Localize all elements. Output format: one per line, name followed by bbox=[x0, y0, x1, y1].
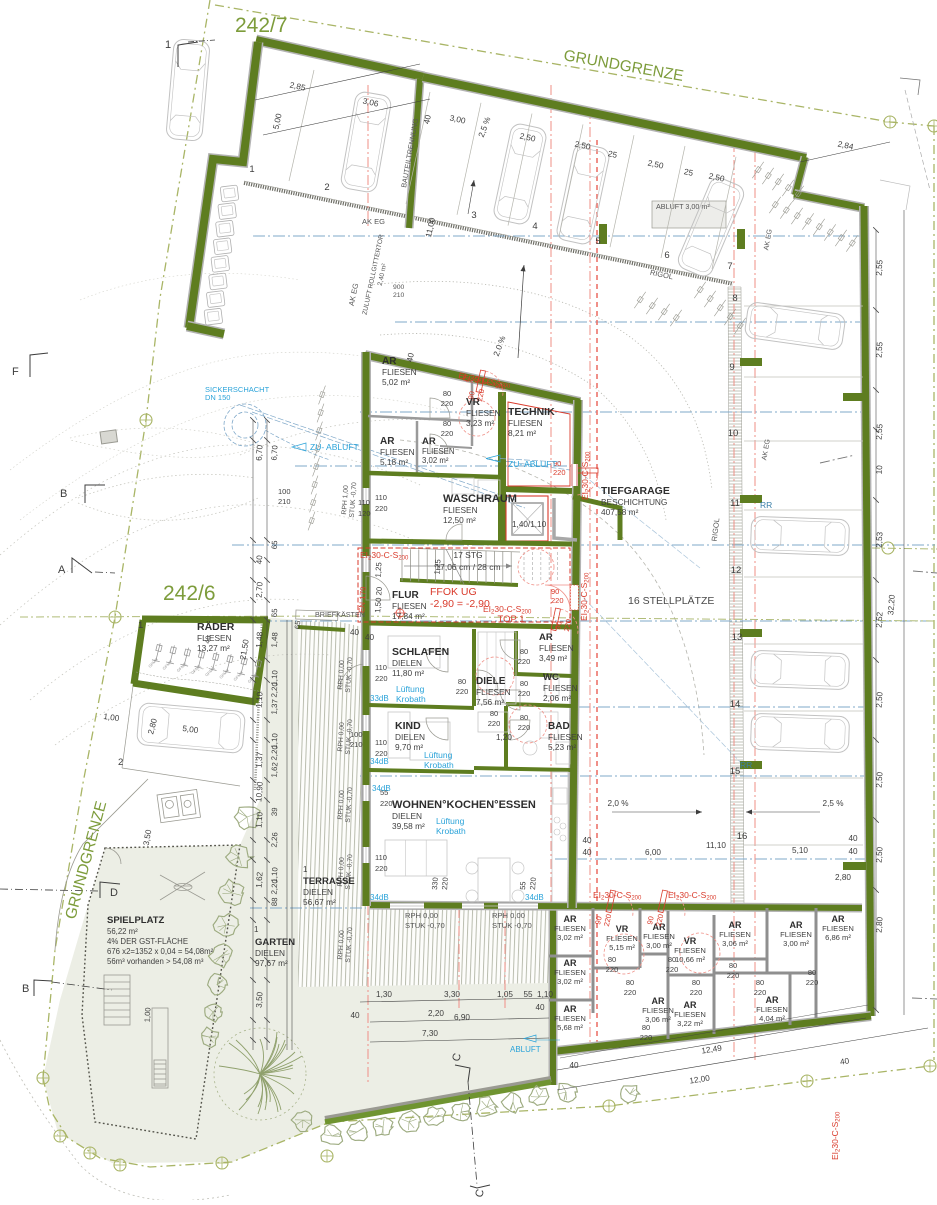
svg-text:2,20: 2,20 bbox=[428, 1009, 444, 1018]
svg-text:AR: AR bbox=[564, 958, 577, 968]
svg-text:3,02 m²: 3,02 m² bbox=[422, 456, 449, 465]
svg-text:6,70: 6,70 bbox=[269, 444, 279, 460]
svg-text:2,55: 2,55 bbox=[874, 341, 884, 358]
svg-text:242/6: 242/6 bbox=[163, 582, 216, 605]
svg-text:80: 80 bbox=[668, 955, 676, 964]
svg-text:FLIESEN: FLIESEN bbox=[822, 924, 854, 933]
svg-text:3,30: 3,30 bbox=[444, 990, 460, 999]
svg-text:5,68 m²: 5,68 m² bbox=[557, 1023, 583, 1032]
svg-text:900: 900 bbox=[393, 284, 405, 291]
svg-text:2: 2 bbox=[324, 182, 329, 193]
svg-text:TIEFGARAGE: TIEFGARAGE bbox=[601, 485, 670, 497]
svg-text:7: 7 bbox=[727, 261, 732, 272]
svg-text:2,50: 2,50 bbox=[874, 691, 884, 708]
svg-text:Krobath: Krobath bbox=[436, 826, 466, 836]
svg-text:FLIESEN: FLIESEN bbox=[476, 687, 511, 697]
svg-text:1,40/1,10: 1,40/1,10 bbox=[512, 520, 547, 529]
svg-text:110: 110 bbox=[375, 493, 387, 502]
svg-text:FLIESEN: FLIESEN bbox=[466, 408, 501, 418]
svg-text:110: 110 bbox=[375, 663, 387, 672]
svg-text:D: D bbox=[110, 887, 118, 899]
svg-text:3: 3 bbox=[471, 210, 476, 221]
svg-text:DIELEN: DIELEN bbox=[392, 658, 422, 668]
svg-text:220: 220 bbox=[518, 723, 531, 732]
svg-text:3,22 m²: 3,22 m² bbox=[677, 1019, 703, 1028]
svg-text:TOP 1: TOP 1 bbox=[497, 614, 524, 625]
svg-text:1,48: 1,48 bbox=[254, 631, 264, 648]
svg-text:220: 220 bbox=[456, 687, 469, 696]
svg-text:F: F bbox=[12, 366, 19, 378]
svg-text:3,02 m²: 3,02 m² bbox=[557, 933, 583, 942]
svg-text:40: 40 bbox=[204, 635, 212, 644]
svg-text:2,50: 2,50 bbox=[874, 771, 884, 788]
svg-text:RR: RR bbox=[760, 500, 772, 510]
svg-text:220: 220 bbox=[666, 965, 679, 974]
svg-text:220: 220 bbox=[806, 978, 819, 987]
svg-text:2,70: 2,70 bbox=[254, 581, 264, 598]
svg-text:11: 11 bbox=[730, 498, 740, 509]
svg-text:407,58 m²: 407,58 m² bbox=[601, 507, 639, 517]
svg-text:40: 40 bbox=[350, 1011, 360, 1020]
svg-text:220: 220 bbox=[488, 719, 501, 728]
svg-text:Krobath: Krobath bbox=[396, 694, 426, 704]
svg-text:12: 12 bbox=[731, 565, 742, 576]
svg-text:5,02 m²: 5,02 m² bbox=[382, 377, 410, 387]
svg-text:1,37: 1,37 bbox=[254, 751, 264, 768]
svg-text:88: 88 bbox=[270, 897, 280, 906]
svg-text:40: 40 bbox=[582, 848, 592, 857]
svg-text:AR: AR bbox=[564, 914, 577, 924]
svg-text:TECHNIK: TECHNIK bbox=[508, 406, 555, 418]
svg-text:FLIESEN: FLIESEN bbox=[508, 418, 543, 428]
svg-text:2,26: 2,26 bbox=[269, 832, 279, 848]
svg-text:16: 16 bbox=[737, 831, 748, 842]
svg-text:3,49 m²: 3,49 m² bbox=[539, 653, 567, 663]
svg-text:1,25: 1,25 bbox=[373, 561, 383, 577]
svg-text:80: 80 bbox=[458, 677, 466, 686]
svg-text:80: 80 bbox=[808, 968, 816, 977]
svg-text:210: 210 bbox=[350, 740, 363, 749]
svg-text:220: 220 bbox=[624, 988, 637, 997]
svg-text:1,05: 1,05 bbox=[497, 990, 513, 999]
svg-text:RPH 0,00: RPH 0,00 bbox=[405, 911, 438, 920]
svg-text:1,20: 1,20 bbox=[496, 733, 512, 742]
svg-text:FLIESEN: FLIESEN bbox=[554, 1014, 586, 1023]
svg-text:DIELEN: DIELEN bbox=[303, 887, 333, 897]
svg-text:FLIESEN: FLIESEN bbox=[539, 643, 574, 653]
svg-text:AR: AR bbox=[652, 996, 665, 1006]
svg-text:DIELEN: DIELEN bbox=[255, 948, 285, 958]
svg-text:100: 100 bbox=[278, 487, 291, 496]
svg-text:2,20: 2,20 bbox=[269, 878, 279, 894]
svg-text:220: 220 bbox=[690, 988, 703, 997]
svg-text:220: 220 bbox=[375, 864, 388, 873]
svg-text:FLIESEN: FLIESEN bbox=[422, 447, 455, 456]
svg-text:1,62: 1,62 bbox=[269, 762, 279, 778]
svg-text:FLUR: FLUR bbox=[392, 590, 419, 601]
svg-text:80: 80 bbox=[443, 419, 451, 428]
svg-text:2: 2 bbox=[118, 757, 123, 768]
svg-text:Lüftung: Lüftung bbox=[436, 816, 465, 826]
svg-text:330: 330 bbox=[430, 877, 440, 890]
svg-text:FLIESEN: FLIESEN bbox=[606, 934, 638, 943]
svg-text:6,90: 6,90 bbox=[454, 1013, 470, 1022]
svg-text:-2,90 = -2,90: -2,90 = -2,90 bbox=[430, 598, 490, 610]
svg-text:FLIESEN: FLIESEN bbox=[719, 930, 751, 939]
svg-text:40: 40 bbox=[839, 1056, 850, 1066]
svg-text:80: 80 bbox=[626, 978, 634, 987]
svg-text:5: 5 bbox=[595, 236, 600, 247]
svg-text:65: 65 bbox=[270, 608, 280, 618]
svg-text:WC: WC bbox=[543, 672, 559, 683]
svg-text:VR: VR bbox=[616, 924, 629, 934]
svg-text:Lüftung: Lüftung bbox=[424, 750, 453, 760]
svg-text:5,18 m²: 5,18 m² bbox=[380, 457, 408, 467]
svg-text:110: 110 bbox=[375, 853, 387, 862]
svg-text:210: 210 bbox=[278, 497, 291, 506]
svg-text:13,27 m²: 13,27 m² bbox=[197, 643, 230, 653]
svg-text:1: 1 bbox=[165, 39, 171, 51]
svg-text:1,37: 1,37 bbox=[269, 699, 279, 715]
svg-text:14: 14 bbox=[730, 699, 741, 710]
svg-text:6,86 m²: 6,86 m² bbox=[825, 933, 851, 942]
svg-text:DIELE: DIELE bbox=[476, 676, 506, 687]
svg-text:40: 40 bbox=[255, 555, 265, 565]
svg-text:5,15 m²: 5,15 m² bbox=[609, 943, 635, 952]
svg-text:40: 40 bbox=[535, 1003, 545, 1012]
svg-text:80: 80 bbox=[642, 1023, 650, 1032]
svg-text:80: 80 bbox=[729, 961, 737, 970]
svg-text:STUK -0,70: STUK -0,70 bbox=[492, 921, 532, 930]
svg-text:56,67 m²: 56,67 m² bbox=[303, 897, 336, 907]
svg-text:3,23 m²: 3,23 m² bbox=[466, 418, 494, 428]
svg-text:3,50: 3,50 bbox=[254, 991, 264, 1008]
svg-text:220: 220 bbox=[553, 468, 566, 477]
svg-text:39: 39 bbox=[270, 807, 280, 816]
svg-text:2,5 %: 2,5 % bbox=[823, 799, 844, 808]
svg-text:Krobath: Krobath bbox=[424, 760, 454, 770]
svg-text:220: 220 bbox=[551, 596, 564, 605]
svg-text:10,90: 10,90 bbox=[254, 781, 264, 803]
svg-text:15: 15 bbox=[730, 766, 741, 777]
svg-text:FLIESEN: FLIESEN bbox=[674, 1010, 706, 1019]
svg-text:DN 150: DN 150 bbox=[205, 393, 230, 402]
svg-text:2,20: 2,20 bbox=[269, 681, 279, 697]
svg-text:11,10: 11,10 bbox=[706, 841, 726, 850]
svg-text:40: 40 bbox=[582, 836, 592, 845]
svg-text:220: 220 bbox=[518, 657, 531, 666]
svg-text:FLIESEN: FLIESEN bbox=[643, 932, 675, 941]
svg-text:WASCHRAUM: WASCHRAUM bbox=[443, 493, 517, 505]
svg-text:34dB: 34dB bbox=[370, 757, 389, 766]
svg-text:220: 220 bbox=[727, 971, 740, 980]
svg-text:80: 80 bbox=[608, 955, 616, 964]
svg-text:ABLUFT: ABLUFT bbox=[510, 1045, 541, 1054]
svg-text:SPIELPLATZ: SPIELPLATZ bbox=[107, 915, 165, 926]
svg-text:FLIESEN: FLIESEN bbox=[548, 732, 583, 742]
svg-text:120: 120 bbox=[358, 509, 371, 518]
svg-text:9: 9 bbox=[729, 362, 734, 373]
svg-text:97,67 m²: 97,67 m² bbox=[255, 958, 288, 968]
svg-text:2,80: 2,80 bbox=[874, 916, 884, 933]
svg-text:4: 4 bbox=[532, 221, 537, 232]
svg-text:80: 80 bbox=[520, 679, 528, 688]
svg-text:TERRASSE: TERRASSE bbox=[303, 876, 355, 887]
svg-text:40: 40 bbox=[350, 628, 360, 637]
svg-text:DIELEN: DIELEN bbox=[392, 811, 422, 821]
svg-text:WOHNEN°KOCHEN°ESSEN: WOHNEN°KOCHEN°ESSEN bbox=[392, 799, 536, 811]
svg-text:GARTEN: GARTEN bbox=[255, 937, 295, 948]
svg-text:1: 1 bbox=[249, 164, 254, 175]
svg-text:2,55: 2,55 bbox=[874, 423, 884, 440]
svg-text:5,23 m²: 5,23 m² bbox=[548, 742, 576, 752]
svg-text:2,53: 2,53 bbox=[874, 531, 884, 548]
svg-text:3,00 m²: 3,00 m² bbox=[646, 941, 672, 950]
svg-text:17,84 m²: 17,84 m² bbox=[392, 611, 425, 621]
svg-text:AR: AR bbox=[382, 356, 397, 367]
svg-text:AR: AR bbox=[766, 995, 779, 1005]
svg-text:BRIEFKÄSTEN: BRIEFKÄSTEN bbox=[315, 610, 365, 619]
svg-text:B: B bbox=[22, 983, 29, 995]
svg-text:1,00: 1,00 bbox=[143, 1007, 153, 1022]
svg-text:AK EG: AK EG bbox=[362, 217, 385, 226]
svg-text:AR: AR bbox=[422, 436, 436, 447]
svg-text:2,06 m²: 2,06 m² bbox=[543, 693, 571, 703]
svg-text:80: 80 bbox=[692, 978, 700, 987]
svg-text:8: 8 bbox=[732, 293, 737, 304]
svg-text:B: B bbox=[60, 488, 67, 500]
svg-text:100: 100 bbox=[350, 730, 363, 739]
svg-text:RR: RR bbox=[740, 760, 752, 770]
svg-text:BAD: BAD bbox=[548, 721, 570, 732]
svg-text:10: 10 bbox=[875, 465, 885, 475]
svg-text:1,10: 1,10 bbox=[537, 990, 553, 999]
svg-text:9,70 m²: 9,70 m² bbox=[395, 742, 423, 752]
svg-text:3,06 m²: 3,06 m² bbox=[722, 939, 748, 948]
svg-text:13: 13 bbox=[732, 632, 743, 643]
svg-text:39,58 m²: 39,58 m² bbox=[392, 821, 425, 831]
svg-text:80: 80 bbox=[490, 709, 498, 718]
svg-text:676 x2=1352 x 0,04 = 54,08m²: 676 x2=1352 x 0,04 = 54,08m² bbox=[107, 947, 214, 956]
svg-text:17,06 cm / 28 cm: 17,06 cm / 28 cm bbox=[435, 562, 500, 572]
svg-text:5,10: 5,10 bbox=[792, 846, 808, 855]
svg-text:4,04 m²: 4,04 m² bbox=[759, 1014, 785, 1023]
svg-text:AR: AR bbox=[790, 920, 803, 930]
svg-text:1: 1 bbox=[138, 620, 143, 631]
svg-text:FLIESEN: FLIESEN bbox=[674, 946, 706, 955]
svg-text:DIELEN: DIELEN bbox=[395, 732, 425, 742]
svg-text:242/7: 242/7 bbox=[235, 14, 288, 37]
svg-text:220: 220 bbox=[441, 399, 454, 408]
svg-text:40: 40 bbox=[848, 847, 858, 856]
svg-text:1: 1 bbox=[254, 925, 259, 934]
svg-text:BESCHICHTUNG: BESCHICHTUNG bbox=[601, 497, 667, 507]
svg-text:220: 220 bbox=[528, 877, 538, 890]
svg-text:2,55: 2,55 bbox=[874, 259, 884, 276]
svg-text:FLIESEN: FLIESEN bbox=[554, 924, 586, 933]
svg-text:FLIESEN: FLIESEN bbox=[543, 683, 578, 693]
svg-text:3,00 m²: 3,00 m² bbox=[783, 939, 809, 948]
svg-text:1,10: 1,10 bbox=[254, 691, 264, 708]
svg-text:1,25: 1,25 bbox=[432, 558, 442, 574]
svg-text:80: 80 bbox=[520, 647, 528, 656]
svg-text:1,62: 1,62 bbox=[254, 871, 264, 888]
svg-text:RPH 0,00: RPH 0,00 bbox=[492, 911, 525, 920]
svg-text:2,50: 2,50 bbox=[874, 846, 884, 863]
svg-text:11,80 m²: 11,80 m² bbox=[392, 668, 424, 678]
svg-text:65: 65 bbox=[270, 540, 280, 550]
svg-text:AR: AR bbox=[729, 920, 742, 930]
svg-text:FLIESEN: FLIESEN bbox=[780, 930, 812, 939]
svg-text:32,20: 32,20 bbox=[886, 594, 896, 616]
svg-text:2,20: 2,20 bbox=[269, 744, 279, 760]
svg-text:FLIESEN: FLIESEN bbox=[642, 1006, 674, 1015]
svg-text:220: 220 bbox=[375, 674, 388, 683]
svg-text:ZU- ABLUFT: ZU- ABLUFT bbox=[310, 442, 359, 452]
svg-text:8,21 m²: 8,21 m² bbox=[508, 428, 536, 438]
svg-text:6,70: 6,70 bbox=[254, 444, 264, 461]
svg-text:33dB: 33dB bbox=[370, 694, 389, 703]
svg-text:12,50 m²: 12,50 m² bbox=[443, 515, 476, 525]
svg-text:40: 40 bbox=[365, 633, 375, 642]
svg-text:1,30: 1,30 bbox=[376, 990, 392, 999]
svg-text:RÄDER: RÄDER bbox=[197, 620, 235, 633]
svg-text:6,00: 6,00 bbox=[645, 848, 661, 857]
svg-text:STUK -0,70: STUK -0,70 bbox=[405, 921, 445, 930]
svg-text:16 STELLPLÄTZE: 16 STELLPLÄTZE bbox=[628, 595, 714, 607]
svg-text:SCHLAFEN: SCHLAFEN bbox=[392, 646, 449, 658]
svg-text:Lüftung: Lüftung bbox=[396, 684, 425, 694]
svg-text:FLIESEN: FLIESEN bbox=[392, 601, 427, 611]
svg-text:220: 220 bbox=[375, 504, 388, 513]
svg-text:110: 110 bbox=[375, 738, 387, 747]
svg-text:3,02 m²: 3,02 m² bbox=[557, 977, 583, 986]
svg-text:FLIESEN: FLIESEN bbox=[382, 367, 417, 377]
svg-text:90: 90 bbox=[551, 587, 559, 596]
svg-text:10: 10 bbox=[728, 428, 739, 439]
svg-text:6: 6 bbox=[664, 250, 669, 261]
svg-text:4% DER GST-FLÄCHE: 4% DER GST-FLÄCHE bbox=[107, 937, 188, 946]
svg-text:80: 80 bbox=[756, 978, 764, 987]
svg-text:220: 220 bbox=[518, 689, 531, 698]
svg-text:FLIESEN: FLIESEN bbox=[756, 1005, 788, 1014]
svg-text:AR: AR bbox=[564, 1004, 577, 1014]
svg-text:KIND: KIND bbox=[395, 720, 421, 732]
svg-text:1,10: 1,10 bbox=[254, 811, 264, 828]
svg-text:56m³ vorhanden > 54,08 m³: 56m³ vorhanden > 54,08 m³ bbox=[107, 957, 204, 966]
svg-text:220: 220 bbox=[440, 877, 450, 890]
svg-text:FLIESEN: FLIESEN bbox=[197, 633, 232, 643]
svg-text:AR: AR bbox=[832, 914, 845, 924]
svg-text:AR: AR bbox=[380, 436, 395, 447]
svg-text:FLIESEN: FLIESEN bbox=[443, 505, 478, 515]
svg-text:80: 80 bbox=[443, 389, 451, 398]
svg-text:210: 210 bbox=[393, 292, 405, 299]
svg-text:40: 40 bbox=[848, 834, 858, 843]
svg-text:A: A bbox=[58, 564, 66, 576]
svg-text:55: 55 bbox=[518, 881, 528, 890]
svg-text:56,22 m²: 56,22 m² bbox=[107, 927, 138, 936]
svg-text:110: 110 bbox=[358, 498, 370, 507]
svg-text:220: 220 bbox=[754, 988, 767, 997]
svg-text:1: 1 bbox=[303, 865, 308, 874]
svg-text:1,50 20: 1,50 20 bbox=[373, 586, 384, 613]
svg-text:34dB: 34dB bbox=[525, 893, 544, 902]
svg-text:AR: AR bbox=[539, 632, 553, 643]
svg-text:17 STG: 17 STG bbox=[453, 550, 482, 560]
svg-text:34dB: 34dB bbox=[370, 893, 389, 902]
svg-text:VR: VR bbox=[684, 936, 697, 946]
svg-text:1,48: 1,48 bbox=[269, 632, 279, 648]
svg-text:55: 55 bbox=[523, 990, 533, 999]
svg-text:220: 220 bbox=[441, 429, 454, 438]
svg-text:40: 40 bbox=[569, 1061, 579, 1070]
svg-text:FFOK UG: FFOK UG bbox=[430, 586, 477, 598]
svg-text:7,56 m²: 7,56 m² bbox=[476, 697, 504, 707]
svg-text:7,30: 7,30 bbox=[422, 1029, 438, 1038]
svg-text:10,66 m²: 10,66 m² bbox=[675, 955, 705, 964]
svg-text:2,80: 2,80 bbox=[835, 873, 851, 882]
svg-text:220: 220 bbox=[606, 965, 619, 974]
svg-text:220: 220 bbox=[380, 799, 393, 808]
svg-text:FLIESEN: FLIESEN bbox=[380, 447, 415, 457]
svg-text:65: 65 bbox=[293, 620, 303, 629]
svg-text:FLIESEN: FLIESEN bbox=[554, 968, 586, 977]
svg-text:80: 80 bbox=[520, 713, 528, 722]
svg-text:220: 220 bbox=[640, 1033, 653, 1042]
svg-text:AR: AR bbox=[684, 1000, 697, 1010]
svg-text:2,0 %: 2,0 % bbox=[608, 799, 629, 808]
svg-text:2,52: 2,52 bbox=[874, 611, 884, 628]
svg-text:34dB: 34dB bbox=[372, 784, 391, 793]
